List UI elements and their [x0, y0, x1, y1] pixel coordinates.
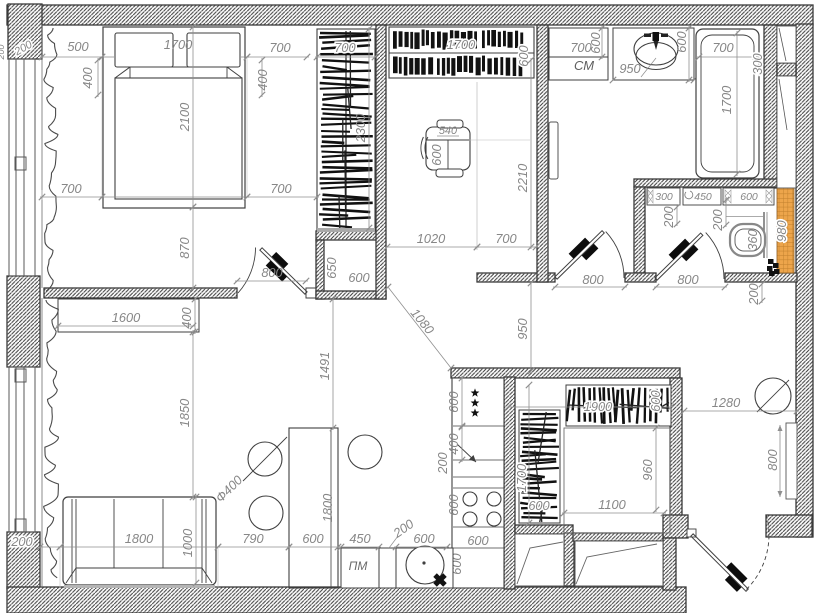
- svg-text:1491: 1491: [317, 352, 332, 380]
- svg-text:800: 800: [677, 272, 699, 287]
- svg-text:540: 540: [439, 125, 458, 137]
- svg-text:700: 700: [334, 40, 356, 55]
- svg-text:600: 600: [516, 44, 531, 66]
- svg-text:600: 600: [648, 389, 663, 411]
- svg-text:700: 700: [270, 181, 292, 196]
- svg-text:1700: 1700: [514, 463, 529, 492]
- svg-text:500: 500: [67, 39, 89, 54]
- svg-text:600: 600: [302, 531, 324, 546]
- svg-text:200: 200: [746, 282, 761, 305]
- svg-text:800: 800: [261, 265, 283, 280]
- svg-text:800: 800: [582, 272, 604, 287]
- svg-text:600: 600: [446, 390, 461, 412]
- svg-text:600: 600: [413, 531, 435, 546]
- svg-text:2100: 2100: [177, 102, 192, 132]
- svg-text:600: 600: [588, 31, 603, 53]
- svg-text:980: 980: [774, 219, 789, 241]
- svg-text:ПМ: ПМ: [349, 559, 368, 573]
- svg-text:200: 200: [10, 534, 33, 549]
- svg-text:870: 870: [177, 236, 192, 258]
- svg-text:1900: 1900: [584, 399, 613, 414]
- svg-text:400: 400: [179, 306, 194, 328]
- svg-text:1280: 1280: [712, 395, 741, 410]
- svg-text:600: 600: [467, 533, 489, 548]
- svg-text:790: 790: [242, 531, 264, 546]
- svg-text:200: 200: [0, 44, 6, 60]
- svg-text:950: 950: [515, 317, 530, 339]
- svg-text:360: 360: [745, 228, 760, 250]
- svg-text:1700: 1700: [164, 37, 193, 52]
- svg-text:600: 600: [740, 191, 758, 203]
- svg-text:450: 450: [349, 531, 371, 546]
- svg-text:600: 600: [446, 493, 461, 515]
- svg-text:1850: 1850: [177, 398, 192, 427]
- svg-text:1000: 1000: [180, 528, 195, 557]
- svg-text:600: 600: [674, 30, 689, 52]
- svg-text:2300: 2300: [353, 113, 368, 143]
- svg-text:1020: 1020: [417, 231, 446, 246]
- svg-text:950: 950: [619, 61, 641, 76]
- svg-text:600: 600: [528, 498, 550, 513]
- svg-text:1700: 1700: [447, 37, 476, 52]
- svg-text:2210: 2210: [515, 163, 530, 193]
- svg-text:600: 600: [429, 143, 444, 165]
- svg-text:700: 700: [269, 40, 291, 55]
- svg-text:400: 400: [80, 66, 95, 88]
- svg-text:200: 200: [710, 208, 725, 231]
- svg-text:300: 300: [750, 52, 765, 74]
- svg-text:200: 200: [661, 205, 676, 228]
- svg-text:400: 400: [446, 432, 461, 454]
- svg-text:1800: 1800: [320, 493, 335, 522]
- svg-text:СМ: СМ: [574, 58, 594, 73]
- svg-text:450: 450: [694, 191, 712, 203]
- svg-text:200: 200: [435, 451, 450, 474]
- svg-text:700: 700: [495, 231, 517, 246]
- svg-text:300: 300: [655, 191, 673, 203]
- svg-text:800: 800: [765, 448, 780, 470]
- svg-text:650: 650: [324, 256, 339, 278]
- svg-text:1700: 1700: [719, 85, 734, 114]
- svg-text:600: 600: [348, 270, 370, 285]
- svg-text:400: 400: [255, 68, 270, 90]
- svg-text:1800: 1800: [125, 531, 154, 546]
- svg-text:700: 700: [60, 181, 82, 196]
- svg-text:1600: 1600: [112, 310, 141, 325]
- svg-text:960: 960: [640, 458, 655, 480]
- svg-text:1100: 1100: [598, 497, 626, 512]
- svg-text:700: 700: [712, 40, 734, 55]
